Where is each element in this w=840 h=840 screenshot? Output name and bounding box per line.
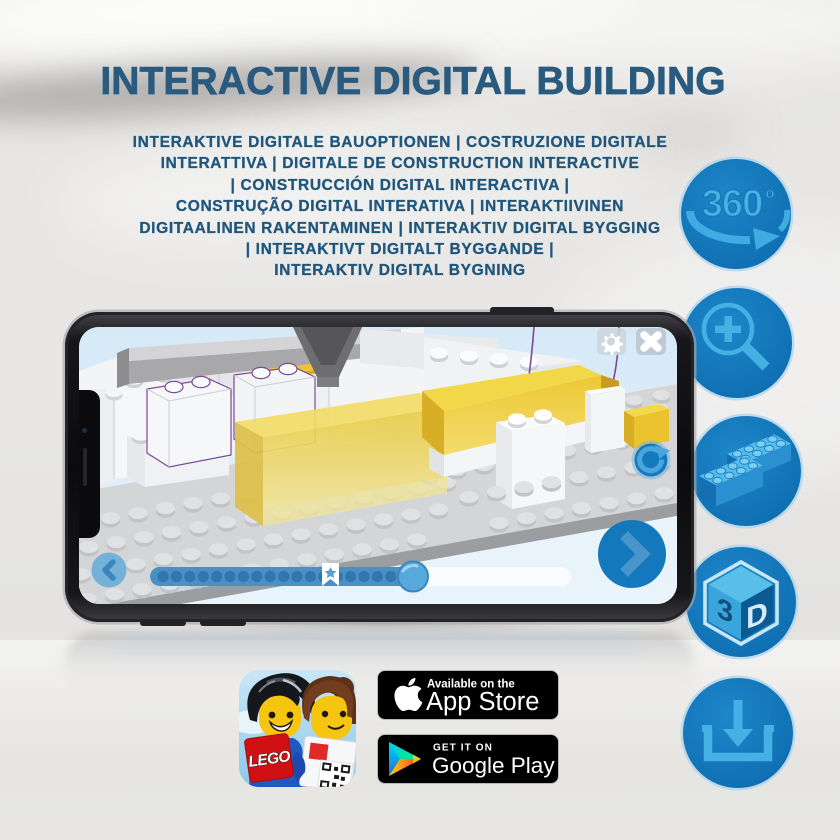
svg-text:o: o (765, 185, 774, 202)
svg-text:App Store: App Store (426, 688, 539, 716)
svg-text:GET IT ON: GET IT ON (433, 743, 493, 754)
svg-text:Google Play: Google Play (432, 753, 555, 778)
svg-text:360: 360 (702, 183, 762, 225)
svg-text:3: 3 (717, 592, 733, 630)
